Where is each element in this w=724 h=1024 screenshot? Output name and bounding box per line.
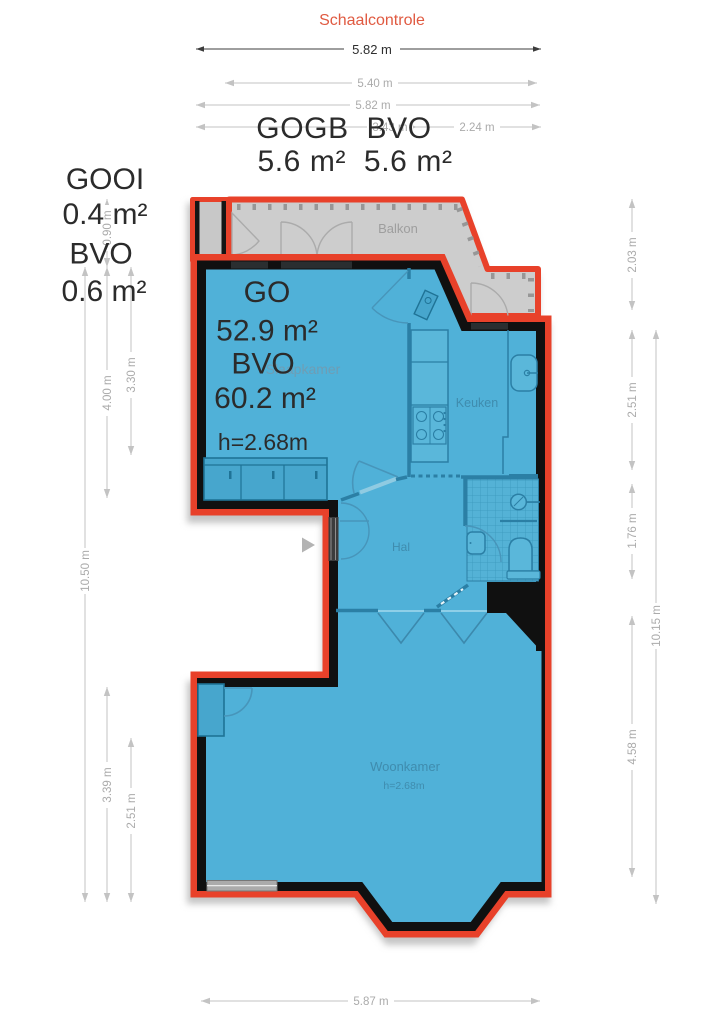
svg-text:h=2.68m: h=2.68m <box>218 429 308 455</box>
svg-text:Schaalcontrole: Schaalcontrole <box>319 12 425 29</box>
svg-text:3.39 m: 3.39 m <box>102 767 114 802</box>
svg-text:h=2.68m: h=2.68m <box>383 780 424 792</box>
svg-text:52.9 m²: 52.9 m² <box>216 315 318 348</box>
svg-text:Woonkamer: Woonkamer <box>370 759 441 774</box>
svg-text:10.50 m: 10.50 m <box>80 550 92 592</box>
svg-text:10.15 m: 10.15 m <box>651 605 663 647</box>
svg-text:Keuken: Keuken <box>456 396 498 410</box>
svg-text:60.2 m²: 60.2 m² <box>214 382 316 415</box>
svg-text:5.82 m: 5.82 m <box>352 42 392 57</box>
svg-text:BVO: BVO <box>69 238 132 271</box>
svg-text:4.00 m: 4.00 m <box>102 375 114 410</box>
svg-text:3.30 m: 3.30 m <box>126 357 138 392</box>
svg-text:GO: GO <box>244 276 291 309</box>
svg-text:2.51 m: 2.51 m <box>126 793 138 828</box>
svg-text:2.03 m: 2.03 m <box>627 237 639 272</box>
svg-text:5.40 m: 5.40 m <box>357 78 392 90</box>
svg-text:2.24 m: 2.24 m <box>459 122 494 134</box>
svg-text:5.6 m² 5.6 m²: 5.6 m² 5.6 m² <box>257 145 452 178</box>
svg-text:BVO: BVO <box>231 348 294 381</box>
svg-text:Hal: Hal <box>392 540 410 554</box>
svg-text:5.82 m: 5.82 m <box>355 100 390 112</box>
svg-text:0.4 m²: 0.4 m² <box>62 198 147 231</box>
svg-text:4.58 m: 4.58 m <box>627 729 639 764</box>
svg-text:1.76 m: 1.76 m <box>627 513 639 548</box>
svg-text:2.51 m: 2.51 m <box>627 382 639 417</box>
svg-text:GOGB BVO: GOGB BVO <box>256 112 431 145</box>
svg-text:Balkon: Balkon <box>378 221 418 236</box>
svg-text:5.87 m: 5.87 m <box>353 996 388 1008</box>
svg-text:0.6 m²: 0.6 m² <box>61 275 146 308</box>
svg-text:GOOI: GOOI <box>66 163 144 196</box>
